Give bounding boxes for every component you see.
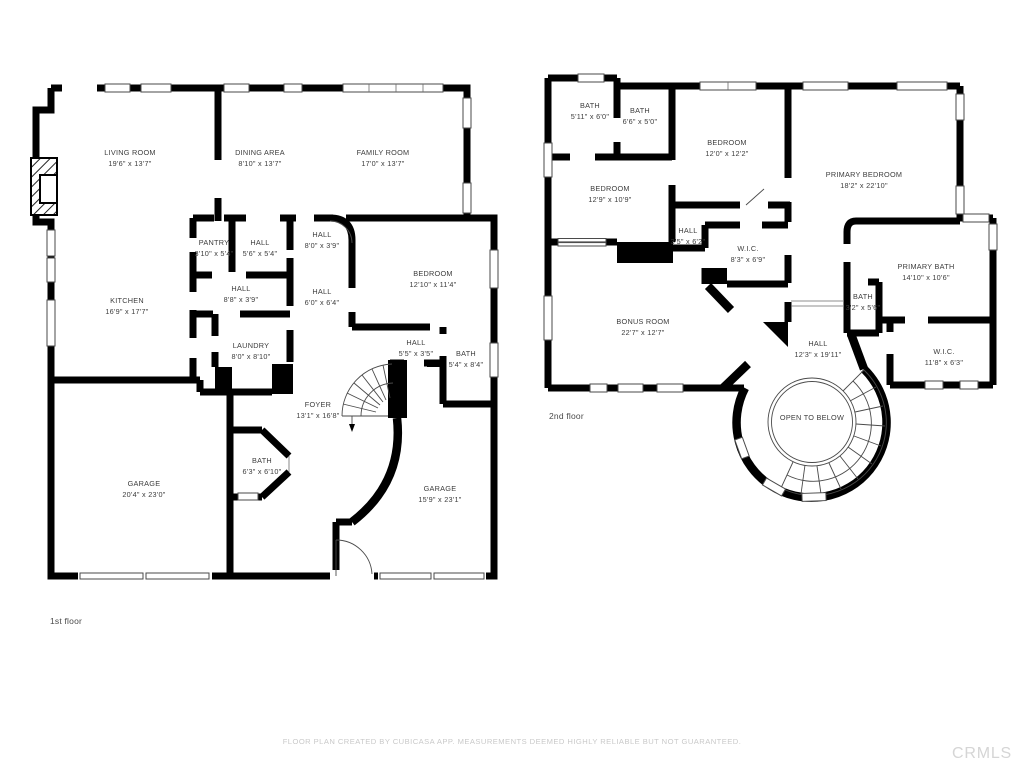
tower-window bbox=[802, 493, 826, 502]
open-to-below-ring bbox=[768, 378, 856, 466]
second-floor-label: 2nd floor bbox=[549, 411, 584, 421]
room-dims-wic-118: 11'8" x 6'3" bbox=[925, 358, 964, 367]
room-dims-hall-35: 3'5" x 6'2" bbox=[671, 237, 706, 246]
room-label-primary-bath: PRIMARY BATH bbox=[898, 262, 955, 271]
room-label-hall-55: HALL bbox=[406, 338, 425, 347]
room-dims-hall-56: 5'6" x 5'4" bbox=[243, 249, 278, 258]
room-dims-laundry: 8'0" x 8'10" bbox=[232, 352, 271, 361]
f2-diagonal-wall-left bbox=[708, 286, 731, 310]
f2-stair-tower bbox=[735, 369, 887, 501]
room-label-garage-right: GARAGE bbox=[424, 484, 457, 493]
room-dims-garage-left: 20'4" x 23'0" bbox=[122, 490, 165, 499]
f2-bedroom-door-leaf bbox=[746, 189, 764, 205]
room-label-wic-83: W.I.C. bbox=[737, 244, 758, 253]
room-dims-bath-32: 3'2" x 5'6" bbox=[846, 303, 881, 312]
open-to-below-ring bbox=[772, 382, 853, 463]
room-dims-hall-80: 8'0" x 3'9" bbox=[305, 241, 340, 250]
room-label-laundry: LAUNDRY bbox=[233, 341, 270, 350]
crmls-watermark: CRMLS bbox=[952, 745, 1012, 762]
room-dims-bath-511: 5'11" x 6'0" bbox=[571, 112, 610, 121]
room-label-bedroom-120: BEDROOM bbox=[707, 138, 746, 147]
first-floor-plan: LIVING ROOM 19'6" x 13'7" DINING AREA 8'… bbox=[31, 84, 498, 626]
f2-outer-walls bbox=[548, 78, 993, 388]
room-dims-wic-83: 8'3" x 6'9" bbox=[731, 255, 766, 264]
room-dims-bedroom-129: 12'9" x 10'9" bbox=[588, 195, 631, 204]
room-label-family-room: FAMILY ROOM bbox=[357, 148, 410, 157]
room-dims-bonus-room: 22'7" x 12'7" bbox=[621, 328, 664, 337]
f2-wall-mass bbox=[617, 242, 673, 263]
open-to-below-label: OPEN TO BELOW bbox=[780, 413, 844, 422]
f2-wall-mass bbox=[708, 268, 727, 284]
f2-windows bbox=[544, 74, 997, 392]
f1-fireplace bbox=[31, 158, 57, 215]
room-label-bedroom-129: BEDROOM bbox=[590, 184, 629, 193]
room-dims-primary-bedroom: 18'2" x 22'10" bbox=[840, 181, 888, 190]
room-dims-bedroom-f1: 12'10" x 11'4" bbox=[409, 280, 456, 289]
f1-wall-mass bbox=[427, 360, 441, 367]
room-dims-kitchen: 16'9" x 17'7" bbox=[105, 307, 148, 316]
f1-wall-mass bbox=[215, 367, 232, 393]
room-dims-hall-88: 8'8" x 3'9" bbox=[224, 295, 259, 304]
room-dims-bedroom-120: 12'0" x 12'2" bbox=[705, 149, 748, 158]
room-label-bath-63: BATH bbox=[252, 456, 272, 465]
room-dims-hall-123: 12'3" x 19'11" bbox=[794, 350, 841, 359]
f1-wall-mass bbox=[388, 360, 407, 418]
f1-bedroom-bath-walls bbox=[330, 218, 494, 404]
room-dims-bath-66: 6'6" x 5'0" bbox=[623, 117, 658, 126]
room-label-bedroom-f1: BEDROOM bbox=[413, 269, 452, 278]
room-dims-bath-63: 6'3" x 6'10" bbox=[243, 467, 282, 476]
room-label-primary-bedroom: PRIMARY BEDROOM bbox=[826, 170, 902, 179]
room-label-wic-118: W.I.C. bbox=[933, 347, 954, 356]
tower-outer-wall bbox=[737, 369, 887, 498]
room-label-living-room: LIVING ROOM bbox=[104, 148, 155, 157]
room-label-bonus-room: BONUS ROOM bbox=[616, 317, 669, 326]
f1-wall-mass bbox=[272, 364, 293, 394]
room-dims-living-room: 19'6" x 13'7" bbox=[108, 159, 151, 168]
second-floor-plan: BATH 5'11" x 6'0" BATH 6'6" x 5'0" BEDRO… bbox=[544, 74, 997, 501]
room-label-hall-35: HALL bbox=[678, 226, 697, 235]
room-label-hall-80: HALL bbox=[312, 230, 331, 239]
room-dims-pantry: 3'10" x 5'4" bbox=[195, 249, 234, 258]
room-dims-garage-right: 15'9" x 23'1" bbox=[418, 495, 461, 504]
room-dims-primary-bath: 14'10" x 10'6" bbox=[902, 273, 950, 282]
room-label-kitchen: KITCHEN bbox=[110, 296, 144, 305]
room-dims-dining-area: 8'10" x 13'7" bbox=[238, 159, 281, 168]
f2-closet-door bbox=[558, 243, 606, 246]
room-label-bath-511: BATH bbox=[580, 101, 600, 110]
f1-curved-stair-wall bbox=[352, 418, 398, 522]
floor-plan-page: LIVING ROOM 19'6" x 13'7" DINING AREA 8'… bbox=[0, 0, 1024, 768]
room-label-bath-54: BATH bbox=[456, 349, 476, 358]
tower-window bbox=[762, 478, 785, 496]
room-label-bath-32: BATH bbox=[853, 292, 873, 301]
f2-closet-door bbox=[558, 239, 606, 242]
room-dims-family-room: 17'0" x 13'7" bbox=[361, 159, 404, 168]
room-label-hall-88: HALL bbox=[231, 284, 250, 293]
room-label-garage-left: GARAGE bbox=[128, 479, 161, 488]
f1-bath63-walls bbox=[230, 392, 289, 576]
f1-garage2-partition bbox=[336, 522, 352, 576]
footer-disclaimer: FLOOR PLAN CREATED BY CUBICASA APP. MEAS… bbox=[283, 737, 742, 746]
room-dims-bath-54: 5'4" x 8'4" bbox=[449, 360, 484, 369]
f2-diagonal-wall-right bbox=[851, 334, 864, 369]
room-label-bath-66: BATH bbox=[630, 106, 650, 115]
room-label-hall-60: HALL bbox=[312, 287, 331, 296]
room-label-hall-123: HALL bbox=[808, 339, 827, 348]
room-label-pantry: PANTRY bbox=[199, 238, 229, 247]
floor-plan-canvas: LIVING ROOM 19'6" x 13'7" DINING AREA 8'… bbox=[0, 0, 1024, 768]
room-label-hall-56: HALL bbox=[250, 238, 269, 247]
f2-diagonal-wall-bonus bbox=[723, 364, 748, 388]
f2-wall-mass-triangle bbox=[763, 322, 788, 347]
first-floor-label: 1st floor bbox=[50, 616, 82, 626]
room-dims-foyer: 13'1" x 16'8" bbox=[296, 411, 339, 420]
f1-foyer-staircase bbox=[342, 364, 393, 432]
room-label-foyer: FOYER bbox=[305, 400, 331, 409]
room-label-dining-area: DINING AREA bbox=[235, 148, 285, 157]
room-dims-hall-55: 5'5" x 3'5" bbox=[399, 349, 434, 358]
room-dims-hall-60: 6'0" x 6'4" bbox=[305, 298, 340, 307]
stair-direction-arrow bbox=[349, 424, 355, 432]
